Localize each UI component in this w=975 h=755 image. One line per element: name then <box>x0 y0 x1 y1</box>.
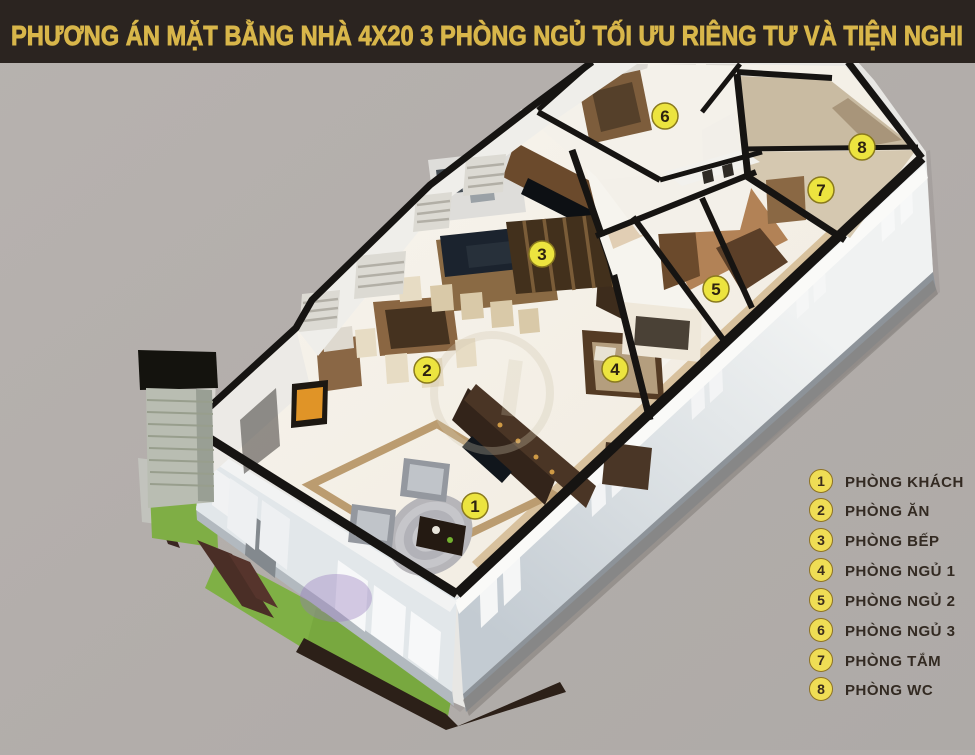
svg-text:5: 5 <box>711 280 720 299</box>
svg-text:7: 7 <box>817 652 825 668</box>
svg-text:PHÒNG NGỦ 3: PHÒNG NGỦ 3 <box>845 622 956 640</box>
svg-text:8: 8 <box>817 681 825 697</box>
svg-text:PHƯƠNG ÁN MẶT BẰNG NHÀ 4X20 3: PHƯƠNG ÁN MẶT BẰNG NHÀ 4X20 3 PHÒNG NGỦ … <box>11 19 963 51</box>
svg-text:3: 3 <box>537 245 546 264</box>
svg-text:6: 6 <box>660 107 669 126</box>
svg-text:PHÒNG BẾP: PHÒNG BẾP <box>845 532 940 550</box>
svg-text:4: 4 <box>817 562 825 578</box>
svg-text:PHÒNG KHÁCH: PHÒNG KHÁCH <box>845 473 964 491</box>
svg-text:PHÒNG WC: PHÒNG WC <box>845 681 933 699</box>
svg-text:1: 1 <box>817 473 825 489</box>
svg-text:PHÒNG TẮM: PHÒNG TẮM <box>845 652 941 670</box>
svg-text:PHÒNG ĂN: PHÒNG ĂN <box>845 502 930 520</box>
svg-text:PHÒNG NGỦ 1: PHÒNG NGỦ 1 <box>845 562 956 580</box>
svg-text:3: 3 <box>817 532 825 548</box>
svg-text:2: 2 <box>422 361 431 380</box>
svg-text:6: 6 <box>817 622 825 638</box>
svg-text:7: 7 <box>816 181 825 200</box>
svg-text:PHÒNG NGỦ 2: PHÒNG NGỦ 2 <box>845 592 956 610</box>
svg-text:4: 4 <box>610 360 620 379</box>
svg-text:8: 8 <box>857 138 866 157</box>
svg-text:2: 2 <box>817 502 825 518</box>
svg-text:1: 1 <box>470 497 479 516</box>
svg-text:5: 5 <box>817 592 825 608</box>
